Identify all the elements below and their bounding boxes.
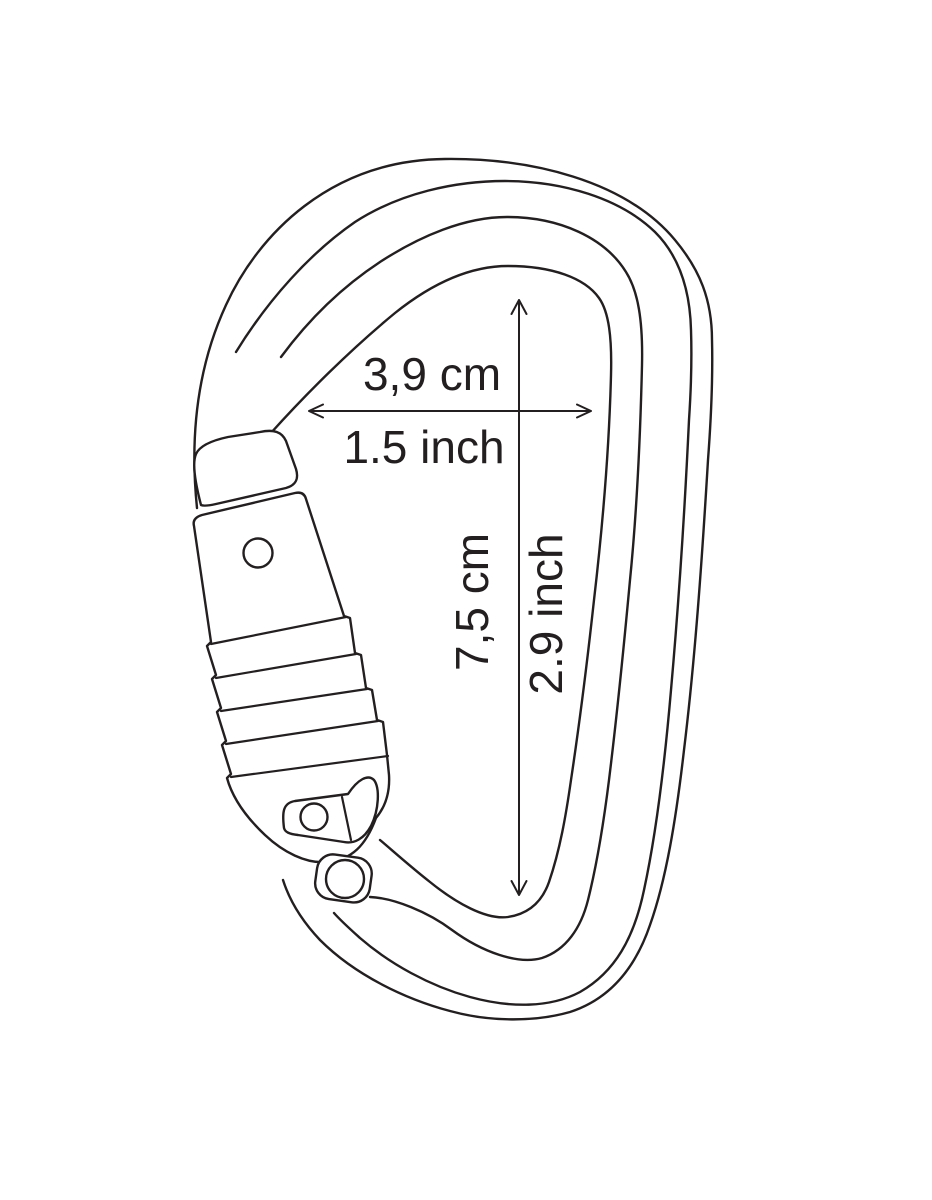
hinge-rivet [301, 804, 328, 831]
height-metric-label: 7,5 cm [446, 533, 498, 671]
sleeve-hole [244, 539, 273, 568]
carabiner-diagram: 3,9 cm 1.5 inch 7,5 cm 2.9 inch [0, 0, 932, 1200]
rivet-boss-hole [326, 860, 364, 898]
height-imperial-label: 2.9 inch [520, 533, 572, 694]
carabiner-gate [194, 431, 389, 905]
width-dimension-arrow [309, 405, 591, 418]
diagram-canvas: 3,9 cm 1.5 inch 7,5 cm 2.9 inch [0, 0, 932, 1200]
width-imperial-label: 1.5 inch [343, 421, 504, 473]
gate-head [194, 431, 297, 506]
width-metric-label: 3,9 cm [363, 348, 501, 400]
